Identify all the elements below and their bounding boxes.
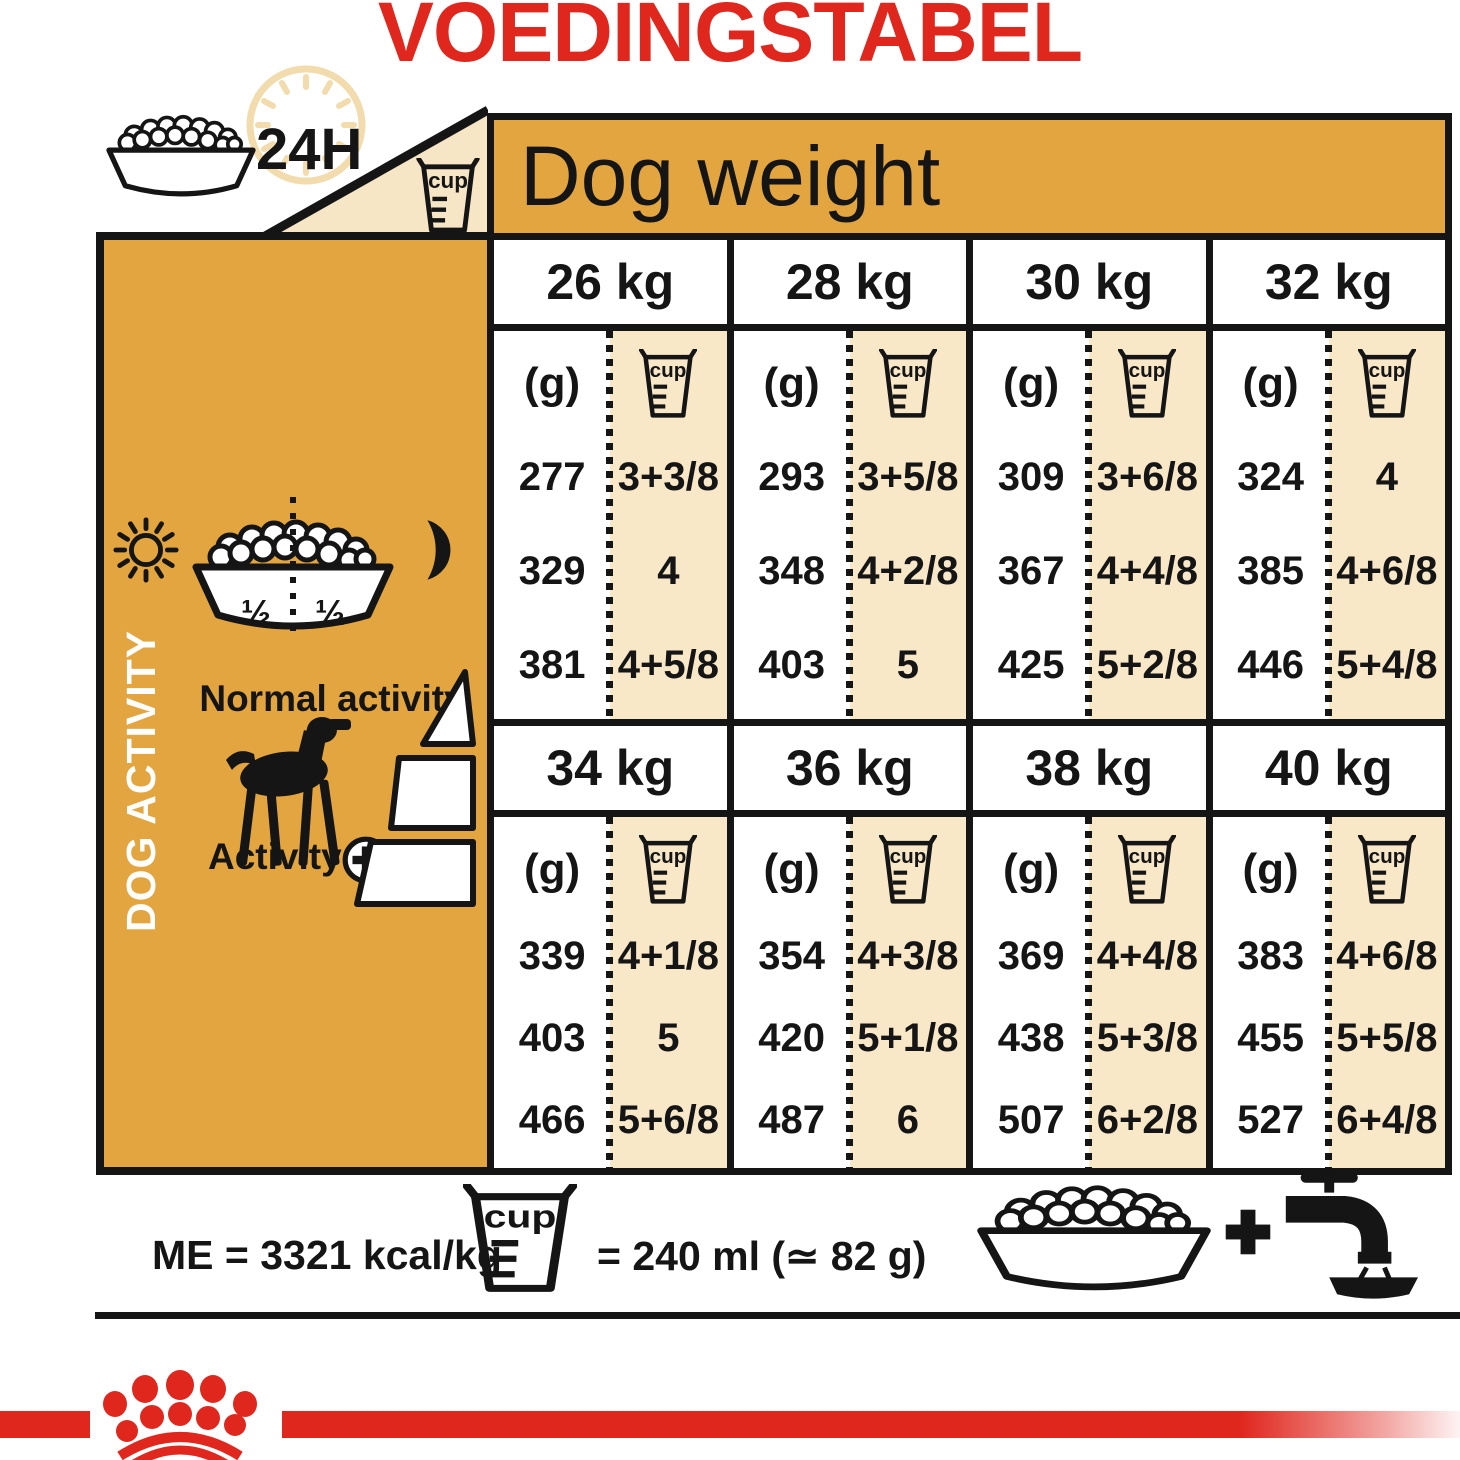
- grams-value: 425: [998, 625, 1065, 719]
- half-split-bowl-icon: ½ ½: [183, 495, 403, 645]
- grams-value: 348: [758, 531, 825, 625]
- dog-activity-vertical-label: DOG ACTIVITY: [118, 652, 165, 932]
- cups-subcolumn: 4+1/8 5 5+6/8: [610, 817, 726, 1168]
- cups-value: 4+3/8: [857, 923, 958, 1005]
- grams-value: 527: [1237, 1086, 1304, 1168]
- grams-unit-label: (g): [764, 331, 820, 437]
- grams-value: 403: [519, 1005, 586, 1087]
- cups-subcolumn: 4+3/8 5+1/8 6: [850, 817, 966, 1168]
- weight-column-34kg: 34 kg (g) 339 403 466 4+1/8 5 5+6/8: [494, 726, 734, 1168]
- measuring-cup-icon: [879, 331, 937, 437]
- grams-value: 383: [1237, 923, 1304, 1005]
- cups-value: 4+5/8: [618, 625, 719, 719]
- weight-header: 34 kg: [494, 726, 727, 817]
- weight-header: 28 kg: [734, 240, 967, 331]
- footer-divider: [95, 1312, 1460, 1319]
- cups-value: 5: [657, 1005, 679, 1087]
- sun-icon: [112, 516, 180, 584]
- grams-unit-label: (g): [1243, 817, 1299, 923]
- moon-icon: [414, 518, 460, 582]
- weight-band-1: 26 kg (g) 277 329 381 3+3/8 4 4+5/8: [487, 240, 1452, 726]
- measuring-cup-icon: [463, 1184, 577, 1294]
- grams-unit-label: (g): [524, 817, 580, 923]
- half-right-label: ½: [315, 592, 345, 633]
- measuring-cup-icon: [416, 158, 480, 234]
- grams-value: 329: [519, 531, 586, 625]
- cups-subcolumn: 3+3/8 4 4+5/8: [610, 331, 726, 719]
- cup-equivalence-label: = 240 ml (≃ 82 g): [597, 1232, 926, 1280]
- grams-subcolumn: (g) 354 420 487: [734, 817, 850, 1168]
- grams-unit-label: (g): [1003, 331, 1059, 437]
- grams-unit-label: (g): [764, 817, 820, 923]
- weight-header: 40 kg: [1213, 726, 1446, 817]
- measuring-cup-icon: [1118, 331, 1176, 437]
- grams-value: 339: [519, 923, 586, 1005]
- cups-value: 4: [657, 531, 679, 625]
- cups-value: 4+2/8: [857, 531, 958, 625]
- cups-subcolumn: 3+5/8 4+2/8 5: [850, 331, 966, 719]
- cups-subcolumn: 4+6/8 5+5/8 6+4/8: [1329, 817, 1445, 1168]
- grams-value: 324: [1237, 437, 1304, 531]
- cups-subcolumn: 3+6/8 4+4/8 5+2/8: [1089, 331, 1205, 719]
- cups-value: 4+1/8: [618, 923, 719, 1005]
- grams-value: 293: [758, 437, 825, 531]
- grams-value: 367: [998, 531, 1065, 625]
- activity-label: Activity: [208, 836, 342, 878]
- weight-header: 36 kg: [734, 726, 967, 817]
- grams-value: 369: [998, 923, 1065, 1005]
- half-left-label: ½: [241, 592, 271, 633]
- grams-value: 455: [1237, 1005, 1304, 1087]
- grams-value: 438: [998, 1005, 1065, 1087]
- grams-value: 487: [758, 1086, 825, 1168]
- grams-value: 466: [519, 1086, 586, 1168]
- page-title: VOEDINGSTABEL: [0, 0, 1460, 81]
- me-kcal-label: ME = 3321 kcal/kg: [152, 1232, 502, 1279]
- feeding-table-page: cup VOEDINGSTABEL: [0, 0, 1460, 1460]
- grams-unit-label: (g): [1003, 817, 1059, 923]
- grams-value: 354: [758, 923, 825, 1005]
- cups-value: 6: [897, 1086, 919, 1168]
- weight-header: 38 kg: [973, 726, 1206, 817]
- grams-subcolumn: (g) 383 455 527: [1213, 817, 1329, 1168]
- grams-unit-label: (g): [524, 331, 580, 437]
- cups-value: 6+4/8: [1336, 1086, 1437, 1168]
- grams-value: 385: [1237, 531, 1304, 625]
- measuring-cup-icon: [639, 817, 697, 923]
- weight-column-26kg: 26 kg (g) 277 329 381 3+3/8 4 4+5/8: [494, 240, 734, 719]
- grams-value: 309: [998, 437, 1065, 531]
- water-tap-icon: [1272, 1168, 1420, 1303]
- cups-subcolumn: 4 4+6/8 5+4/8: [1329, 331, 1445, 719]
- weight-column-30kg: 30 kg (g) 309 367 425 3+6/8 4+4/8 5+2/8: [973, 240, 1213, 719]
- grams-value: 446: [1237, 625, 1304, 719]
- measuring-cup-icon: [879, 817, 937, 923]
- cups-value: 4+4/8: [1097, 531, 1198, 625]
- cups-value: 5+6/8: [618, 1086, 719, 1168]
- dog-activity-panel: ½ ½ DOG ACTIVITY Normal activity Ac: [96, 232, 487, 1175]
- cups-value: 3+3/8: [618, 437, 719, 531]
- kibble-bowl-icon: [972, 1183, 1216, 1305]
- weight-band-2: 34 kg (g) 339 403 466 4+1/8 5 5+6/8: [487, 726, 1452, 1175]
- cups-value: 5+1/8: [857, 1005, 958, 1087]
- cups-value: 3+5/8: [857, 437, 958, 531]
- grams-subcolumn: (g) 277 329 381: [494, 331, 610, 719]
- cups-value: 4+4/8: [1097, 923, 1198, 1005]
- cups-value: 5: [897, 625, 919, 719]
- grams-subcolumn: (g) 293 348 403: [734, 331, 850, 719]
- weight-column-28kg: 28 kg (g) 293 348 403 3+5/8 4+2/8 5: [734, 240, 974, 719]
- weight-header: 26 kg: [494, 240, 727, 331]
- grams-value: 403: [758, 625, 825, 719]
- royal-canin-crown-logo: [90, 1352, 282, 1460]
- weight-column-40kg: 40 kg (g) 383 455 527 4+6/8 5+5/8 6+4/8: [1213, 726, 1446, 1168]
- weight-column-32kg: 32 kg (g) 324 385 446 4 4+6/8 5+4/8: [1213, 240, 1446, 719]
- cups-value: 5+2/8: [1097, 625, 1198, 719]
- cups-value: 5+5/8: [1336, 1005, 1437, 1087]
- grams-value: 277: [519, 437, 586, 531]
- weight-column-38kg: 38 kg (g) 369 438 507 4+4/8 5+3/8 6+2/8: [973, 726, 1213, 1168]
- grams-value: 507: [998, 1086, 1065, 1168]
- measuring-cup-icon: [639, 331, 697, 437]
- dog-weight-header: Dog weight: [487, 113, 1452, 240]
- cups-value: 4+6/8: [1336, 923, 1437, 1005]
- weight-column-36kg: 36 kg (g) 354 420 487 4+3/8 5+1/8 6: [734, 726, 974, 1168]
- activity-level-ramp: [352, 668, 478, 908]
- cups-value: 6+2/8: [1097, 1086, 1198, 1168]
- grams-subcolumn: (g) 309 367 425: [973, 331, 1089, 719]
- plus-icon: [1222, 1206, 1274, 1258]
- cups-value: 4: [1376, 437, 1398, 531]
- cups-value: 5+3/8: [1097, 1005, 1198, 1087]
- grams-subcolumn: (g) 369 438 507: [973, 817, 1089, 1168]
- grams-unit-label: (g): [1243, 331, 1299, 437]
- measuring-cup-icon: [1358, 331, 1416, 437]
- cups-value: 5+4/8: [1336, 625, 1437, 719]
- weight-header: 30 kg: [973, 240, 1206, 331]
- weight-header: 32 kg: [1213, 240, 1446, 331]
- kibble-bowl-icon: [103, 113, 259, 208]
- measuring-cup-icon: [1358, 817, 1416, 923]
- measuring-cup-icon: [1118, 817, 1176, 923]
- grams-subcolumn: (g) 324 385 446: [1213, 331, 1329, 719]
- cups-value: 4+6/8: [1336, 531, 1437, 625]
- cups-subcolumn: 4+4/8 5+3/8 6+2/8: [1089, 817, 1205, 1168]
- grams-value: 420: [758, 1005, 825, 1087]
- dog-weight-label: Dog weight: [520, 128, 940, 225]
- grams-subcolumn: (g) 339 403 466: [494, 817, 610, 1168]
- grams-value: 381: [519, 625, 586, 719]
- cups-value: 3+6/8: [1097, 437, 1198, 531]
